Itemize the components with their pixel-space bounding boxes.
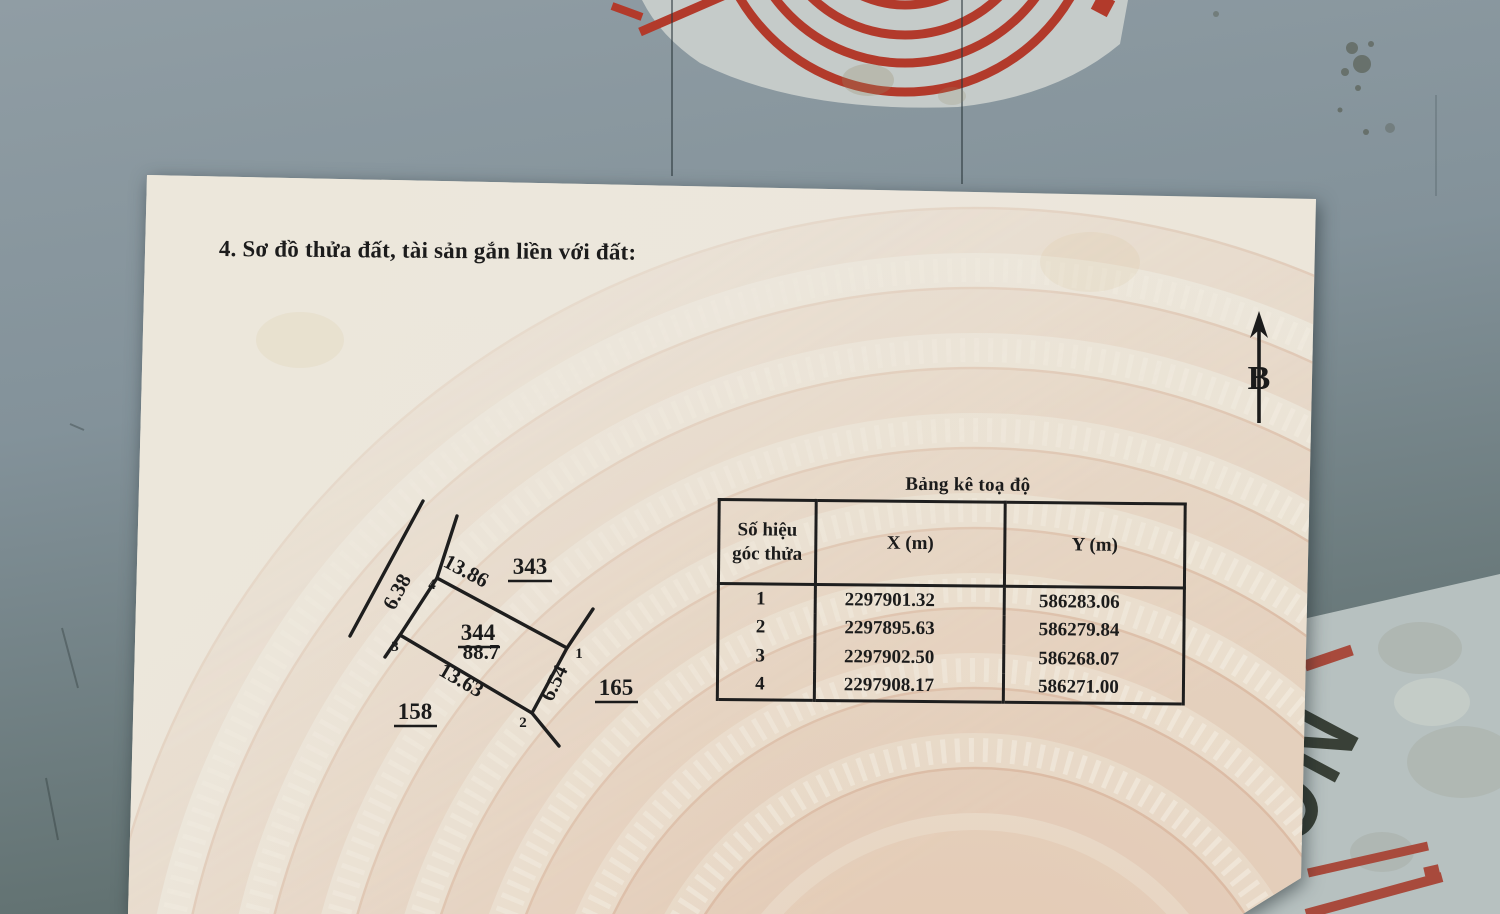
table-row: 3 2297902.50 586268.07 — [718, 642, 1184, 675]
corner-y: 586279.84 — [1004, 615, 1184, 646]
vertex-3-label: 3 — [391, 639, 399, 655]
coordinate-table-block: Bảng kê toạ độ Số hiệu góc thửa X (m) Y … — [716, 472, 1184, 705]
adjacent-parcel-right-label: 165 — [599, 675, 634, 700]
corner-y: 586271.00 — [1003, 673, 1183, 704]
corner-x: 2297902.50 — [815, 642, 1004, 673]
adjacent-parcel-top-label: 343 — [513, 554, 548, 579]
vertex-1-label: 1 — [575, 646, 583, 662]
table-row: 1 2297901.32 586283.06 — [718, 584, 1184, 617]
coordinate-table-title: Bảng kê toạ độ — [718, 472, 1184, 498]
photo-scene: ỒN — [0, 0, 1500, 914]
north-label: B — [1248, 360, 1271, 397]
edge-top-length-label: 13.86 — [440, 549, 493, 592]
table-row: 4 2297908.17 586271.00 — [717, 671, 1183, 704]
table-row: 2 2297895.63 586279.84 — [718, 613, 1184, 646]
corner-id: 1 — [718, 584, 815, 614]
coordinate-table: Số hiệu góc thửa X (m) Y (m) 1 2297901.3… — [716, 498, 1187, 705]
vertex-4-label: 4 — [428, 577, 436, 593]
corner-x: 2297901.32 — [815, 584, 1004, 615]
north-arrow: B — [1248, 311, 1271, 423]
edge-top — [437, 578, 567, 648]
vertex-2-label: 2 — [519, 715, 527, 731]
parcel-area-label: 88.7 — [463, 640, 500, 664]
col-header-y: Y (m) — [1004, 502, 1185, 588]
corner-y: 586283.06 — [1004, 586, 1184, 617]
col-header-corner-id: Số hiệu góc thửa — [718, 500, 816, 585]
corner-id: 2 — [718, 613, 815, 643]
adjacent-parcel-left-label: 158 — [398, 699, 433, 724]
corner-id: 4 — [717, 671, 814, 701]
col-header-x: X (m) — [815, 500, 1005, 586]
corner-id: 3 — [718, 642, 815, 672]
parcel-diagram: 343 344 88.7 158 165 13.86 6.38 13.63 6.… — [0, 0, 1500, 914]
certificate-paper-wrap: 4. Sơ đồ thửa đất, tài sản gắn liền với … — [0, 0, 1500, 914]
corner-x: 2297908.17 — [814, 671, 1003, 702]
edge-bottom-length-label: 13.63 — [435, 658, 488, 702]
certificate-paper: 4. Sơ đồ thửa đất, tài sản gắn liền với … — [0, 0, 1500, 914]
corner-x: 2297895.63 — [815, 613, 1004, 644]
corner-y: 586268.07 — [1004, 644, 1184, 675]
table-header-row: Số hiệu góc thửa X (m) Y (m) — [718, 500, 1185, 588]
